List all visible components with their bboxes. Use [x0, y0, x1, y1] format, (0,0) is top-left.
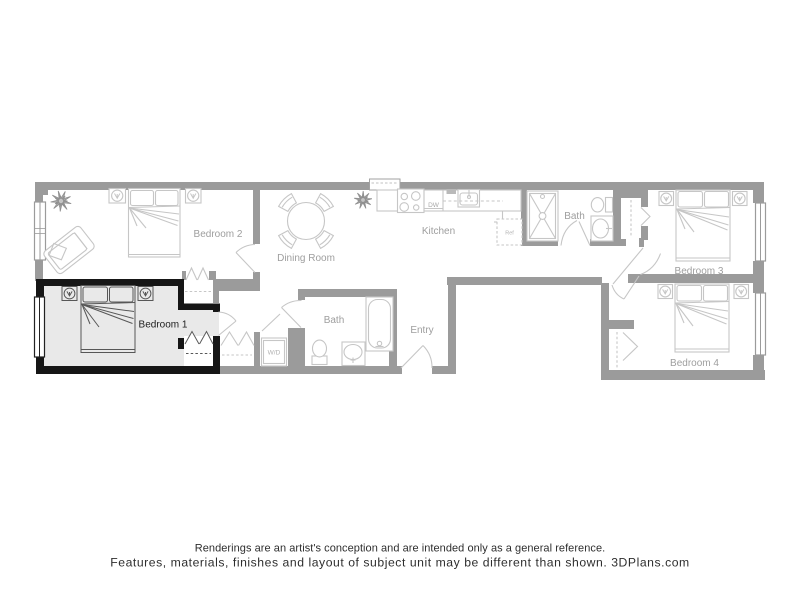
svg-text:Bedroom 4: Bedroom 4 [670, 358, 719, 369]
svg-text:Entry: Entry [410, 325, 433, 336]
svg-text:Bath: Bath [564, 211, 585, 222]
svg-text:DW: DW [428, 202, 440, 209]
svg-text:Features, materials, finishes: Features, materials, finishes and layout… [110, 556, 690, 570]
svg-text:Bedroom 2: Bedroom 2 [194, 229, 243, 240]
svg-text:Dining Room: Dining Room [277, 253, 335, 264]
svg-text:Renderings are an artist's con: Renderings are an artist's conception an… [195, 543, 605, 555]
svg-text:Bedroom 1: Bedroom 1 [139, 320, 188, 331]
svg-text:Bath: Bath [324, 315, 345, 326]
svg-text:W/D: W/D [268, 350, 281, 357]
svg-text:Ref: Ref [505, 231, 514, 237]
svg-text:Kitchen: Kitchen [422, 226, 455, 237]
svg-text:Bedroom 3: Bedroom 3 [675, 266, 724, 277]
